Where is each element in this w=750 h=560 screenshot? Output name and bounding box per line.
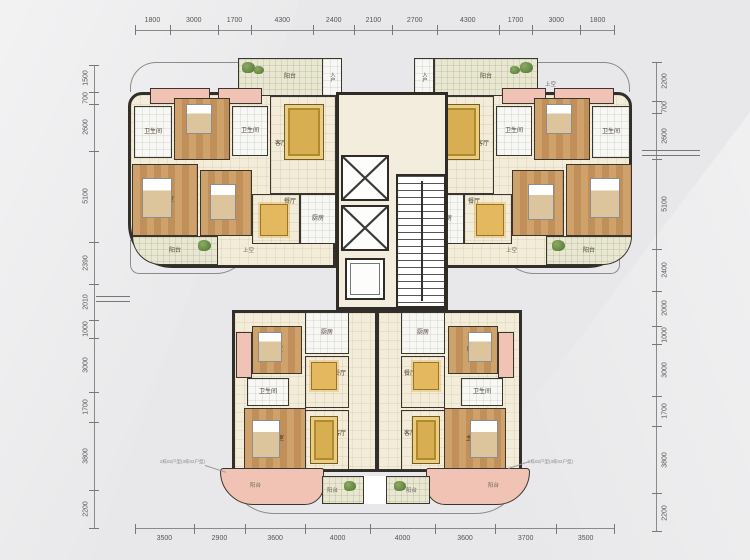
dim-segment: 2600 <box>78 104 94 150</box>
dim-segment: 3700 <box>495 529 556 545</box>
room-bathroom: 卫生间 <box>461 378 503 406</box>
room-label: 卫生间 <box>602 129 620 135</box>
dim-value: 1700 <box>499 17 533 24</box>
plant-icon <box>254 66 264 74</box>
dim-segment: 3500 <box>135 529 194 545</box>
dim-value: 2010 <box>83 294 90 310</box>
dim-value: 5100 <box>83 188 90 204</box>
rug-icon <box>284 104 324 160</box>
dim-value: 1000 <box>83 321 90 337</box>
room-bathroom: 卫生间 <box>496 106 532 156</box>
dim-value: 4300 <box>251 17 313 24</box>
dim-segment: 1700 <box>78 392 94 422</box>
bed-icon <box>468 332 492 362</box>
dim-value: 2390 <box>83 255 90 271</box>
dim-value: 3800 <box>83 448 90 464</box>
dim-segment: 2000 <box>657 291 673 326</box>
room-kitchen: 厨房 <box>305 312 349 354</box>
entry-strip-left: 入户 <box>322 58 342 96</box>
dimension-ruler-right: 2200 700 2600 5100 2400 2000 1000 3000 1… <box>656 62 673 532</box>
dim-segment: 5100 <box>657 159 673 249</box>
dim-value: 4000 <box>370 535 435 542</box>
dim-value: 2400 <box>313 17 354 24</box>
bed-icon <box>252 420 280 458</box>
dim-segment: 2390 <box>78 242 94 285</box>
rug-icon <box>310 416 338 464</box>
corridor-stub-right <box>642 150 700 156</box>
dining-table-icon <box>260 204 288 236</box>
room-bathroom: 卫生间 <box>232 106 268 156</box>
room-bathroom: 卫生间 <box>247 378 289 406</box>
dim-value: 2200 <box>662 74 669 90</box>
dim-segment: 3000 <box>170 14 218 30</box>
dim-value: 4300 <box>437 17 499 24</box>
bed-icon <box>258 332 282 362</box>
elevator-icon <box>341 205 389 251</box>
dim-value: 4000 <box>305 535 370 542</box>
dim-segment: 3500 <box>556 529 615 545</box>
dim-segment: 2200 <box>657 493 673 532</box>
dining-table-icon <box>413 362 439 390</box>
plant-icon <box>510 66 520 74</box>
unit-number-note: 2栋02户型(3栋02户型) <box>160 459 205 465</box>
dim-segment: 3800 <box>78 422 94 490</box>
dim-value: 2100 <box>354 17 392 24</box>
dim-value: 2200 <box>83 502 90 518</box>
dim-segment: 1800 <box>580 14 615 30</box>
dim-segment: 1000 <box>657 326 673 344</box>
dim-value: 3500 <box>556 535 615 542</box>
dim-segment: 700 <box>657 101 673 113</box>
dim-segment: 2200 <box>78 490 94 529</box>
dim-segment: 3800 <box>657 426 673 493</box>
dim-value: 3600 <box>435 535 495 542</box>
elevator-icon <box>341 155 389 201</box>
balcony-label: 阳台 <box>250 481 261 489</box>
room-label: 厨房 <box>321 330 333 336</box>
room-bathroom: 卫生间 <box>592 106 630 158</box>
dim-tick <box>614 524 615 534</box>
dim-value: 2600 <box>83 120 90 136</box>
open-above-label: 上空 <box>506 246 517 254</box>
room-label: 卫生间 <box>144 129 162 135</box>
dim-value: 2600 <box>662 128 669 144</box>
dim-segment: 1800 <box>135 14 170 30</box>
corridor-stub-left <box>96 296 130 302</box>
open-above-label: 上空 <box>243 246 254 254</box>
dining-table-icon <box>311 362 337 390</box>
dim-value: 2900 <box>194 535 245 542</box>
room-label: 卫生间 <box>505 128 523 134</box>
open-above-label: 上空 <box>545 80 556 88</box>
room-label: 卫生间 <box>473 389 491 395</box>
dim-tick <box>89 528 99 529</box>
dimension-ruler-top: 1800 3000 1700 4300 2400 2100 2700 4300 … <box>135 14 615 31</box>
plant-icon <box>520 62 533 73</box>
dim-value: 1700 <box>662 404 669 420</box>
plant-icon <box>394 481 406 491</box>
dim-segment: 4300 <box>437 14 499 30</box>
rug-icon <box>412 416 440 464</box>
balcony-label: 阳台 <box>327 486 338 494</box>
dim-segment: 2700 <box>392 14 437 30</box>
dim-value: 3600 <box>245 535 305 542</box>
bed-icon <box>546 104 572 134</box>
balcony-label: 阳台 <box>406 486 417 494</box>
room-label: 卫生间 <box>259 389 277 395</box>
terrace-label: 阳台 <box>583 248 595 254</box>
dim-value: 2400 <box>662 262 669 278</box>
staircase <box>396 174 446 308</box>
room-bathroom: 卫生间 <box>134 106 172 158</box>
dim-value: 3000 <box>170 17 218 24</box>
bay-window-pink <box>236 332 252 378</box>
dim-value: 3800 <box>662 452 669 468</box>
room-kitchen: 厨房 <box>300 194 336 244</box>
dim-value: 700 <box>662 101 669 113</box>
dining-table-icon <box>476 204 504 236</box>
dim-segment: 1700 <box>657 396 673 426</box>
balcony-label: 阳台 <box>488 481 499 489</box>
dim-segment: 2400 <box>657 249 673 291</box>
room-kitchen: 厨房 <box>401 312 445 354</box>
bay-window-pink <box>498 332 514 378</box>
dim-segment: 3600 <box>435 529 495 545</box>
dim-segment: 4300 <box>251 14 313 30</box>
dim-segment: 3000 <box>532 14 580 30</box>
dim-segment: 1700 <box>218 14 252 30</box>
unit-number-note: 2栋02户型(3栋02户型) <box>528 459 573 465</box>
dim-value: 3000 <box>662 362 669 378</box>
floorplan-canvas: 1800 3000 1700 4300 2400 2100 2700 4300 … <box>0 0 750 560</box>
dim-value: 1000 <box>662 327 669 343</box>
dim-value: 5100 <box>662 196 669 212</box>
dim-value: 3700 <box>495 535 556 542</box>
entry-strip-right: 入户 <box>414 58 434 96</box>
terrace-label: 阳台 <box>169 248 181 254</box>
dim-segment: 2200 <box>657 62 673 101</box>
dim-segment: 1500 <box>78 65 94 92</box>
balcony-bottom-left <box>220 468 324 505</box>
entry-label: 入户 <box>422 72 427 82</box>
dim-value: 1800 <box>135 17 170 24</box>
dim-value: 1800 <box>580 17 615 24</box>
bed-icon <box>210 184 236 220</box>
dimension-ruler-bottom: 3500 2900 3600 4000 4000 3600 3700 3500 <box>135 528 615 545</box>
bed-icon <box>528 184 554 220</box>
dim-segment: 4000 <box>370 529 435 545</box>
room-label: 卫生间 <box>241 128 259 134</box>
dim-segment: 3600 <box>245 529 305 545</box>
plant-icon <box>344 481 356 491</box>
dim-value: 1700 <box>83 399 90 415</box>
dim-segment: 2010 <box>78 284 94 320</box>
dim-segment: 4000 <box>305 529 370 545</box>
bed-icon <box>142 178 172 218</box>
entry-label: 入户 <box>330 72 335 82</box>
entry-door-gap <box>363 476 387 504</box>
dim-value: 2200 <box>662 505 669 521</box>
dim-value: 1700 <box>218 17 252 24</box>
bed-icon <box>590 178 620 218</box>
dim-segment: 5100 <box>78 151 94 242</box>
dim-value: 3000 <box>83 357 90 373</box>
bed-icon <box>186 104 212 134</box>
dim-value: 3000 <box>532 17 580 24</box>
dim-segment: 2900 <box>194 529 245 545</box>
dim-value: 700 <box>83 92 90 104</box>
dim-segment: 3000 <box>78 338 94 392</box>
dim-segment: 3000 <box>657 344 673 397</box>
dim-segment: 1700 <box>499 14 533 30</box>
dim-tick <box>614 25 615 35</box>
dim-value: 1500 <box>83 71 90 87</box>
room-label: 厨房 <box>312 216 324 222</box>
plant-icon <box>552 240 565 251</box>
balcony-label: 阳台 <box>480 74 492 80</box>
dim-segment: 1000 <box>78 320 94 338</box>
plant-icon <box>198 240 211 251</box>
dim-value: 2000 <box>662 301 669 317</box>
dim-value: 2700 <box>392 17 437 24</box>
dim-value: 3500 <box>135 535 194 542</box>
room-label: 厨房 <box>417 330 429 336</box>
elevator-machine-room <box>345 258 385 300</box>
dim-tick <box>652 531 662 532</box>
dim-segment: 700 <box>78 92 94 105</box>
dim-segment: 2100 <box>354 14 392 30</box>
dim-segment: 2400 <box>313 14 354 30</box>
bed-icon <box>470 420 498 458</box>
balcony-label: 阳台 <box>284 74 296 80</box>
dimension-ruler-left: 1500 700 2600 5100 2390 2010 1000 3000 1… <box>78 65 95 529</box>
balcony-bottom-right <box>426 468 530 505</box>
